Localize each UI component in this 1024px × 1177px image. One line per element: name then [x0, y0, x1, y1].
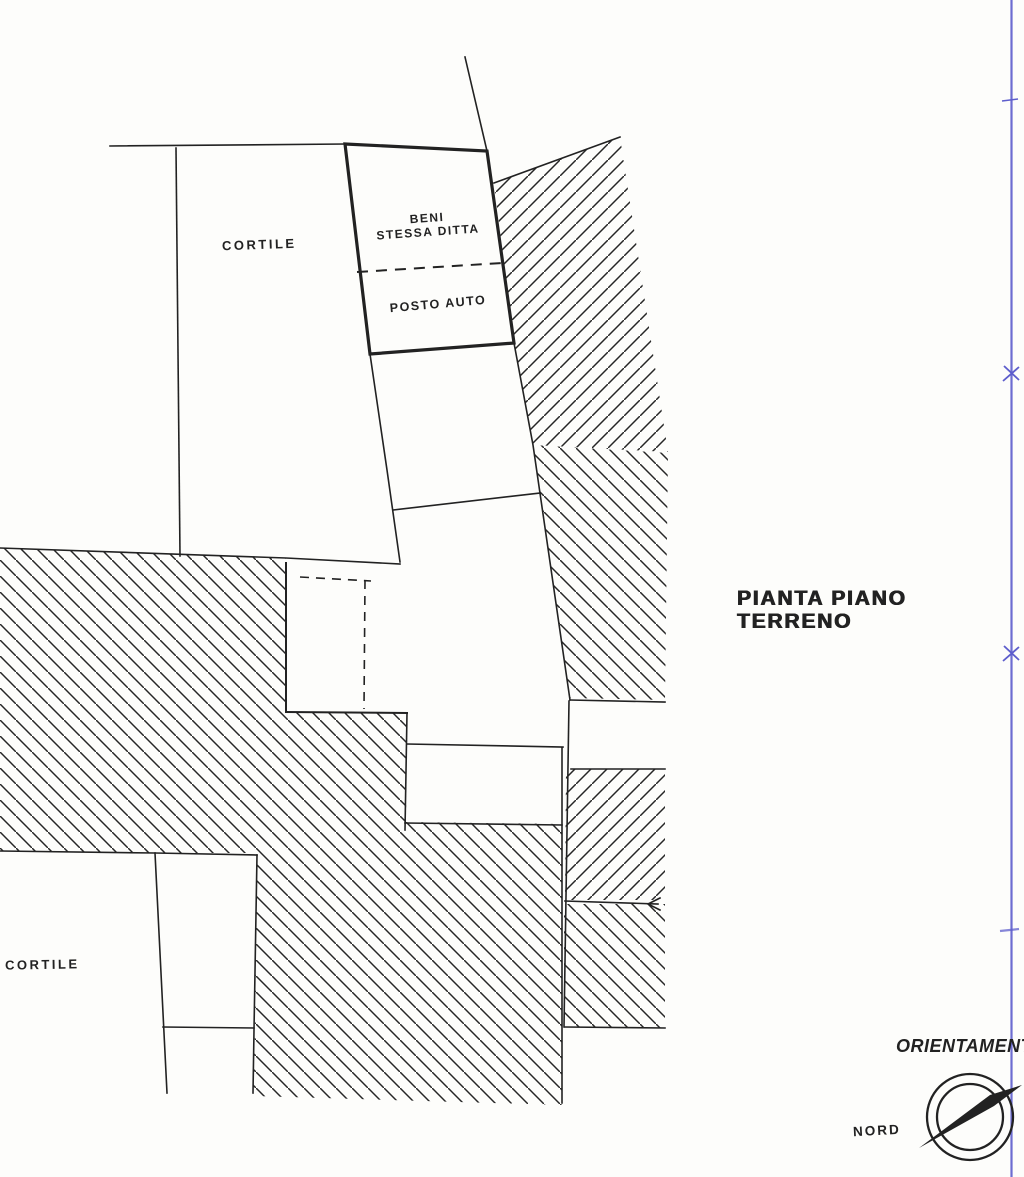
inset-room-dashed-top [300, 577, 371, 581]
hatch-left-band [0, 548, 562, 1105]
parcel-outline [345, 144, 514, 354]
parcel-divider-dashed [357, 263, 502, 272]
hatch-middle-right [533, 445, 668, 700]
inset-room-dashed-right [364, 580, 365, 709]
scanned-floor-plan-sheet: CORTILE BENI STESSA DITTA POSTO AUTO PIA… [0, 0, 1024, 1177]
dashed-lines [300, 263, 502, 709]
compass-group [919, 1074, 1022, 1160]
label-nord: NORD [853, 1122, 901, 1139]
hatch-upper-right [494, 137, 668, 452]
hatch-regions [0, 137, 668, 1105]
label-orientamento: ORIENTAMENTO [896, 1036, 1024, 1057]
plan-caption-line2: TERRENO [737, 610, 907, 633]
label-cortile-top: CORTILE [222, 236, 297, 254]
label-cortile-bottom: CORTILE [5, 956, 80, 972]
fold-line-group [1000, 0, 1019, 1177]
hatch-lower-right-a [565, 769, 665, 900]
plan-caption-line1: PIANTA PIANO [737, 587, 907, 610]
hatch-lower-right-b [564, 904, 665, 1028]
plan-caption: PIANTA PIANO TERRENO [737, 587, 907, 633]
